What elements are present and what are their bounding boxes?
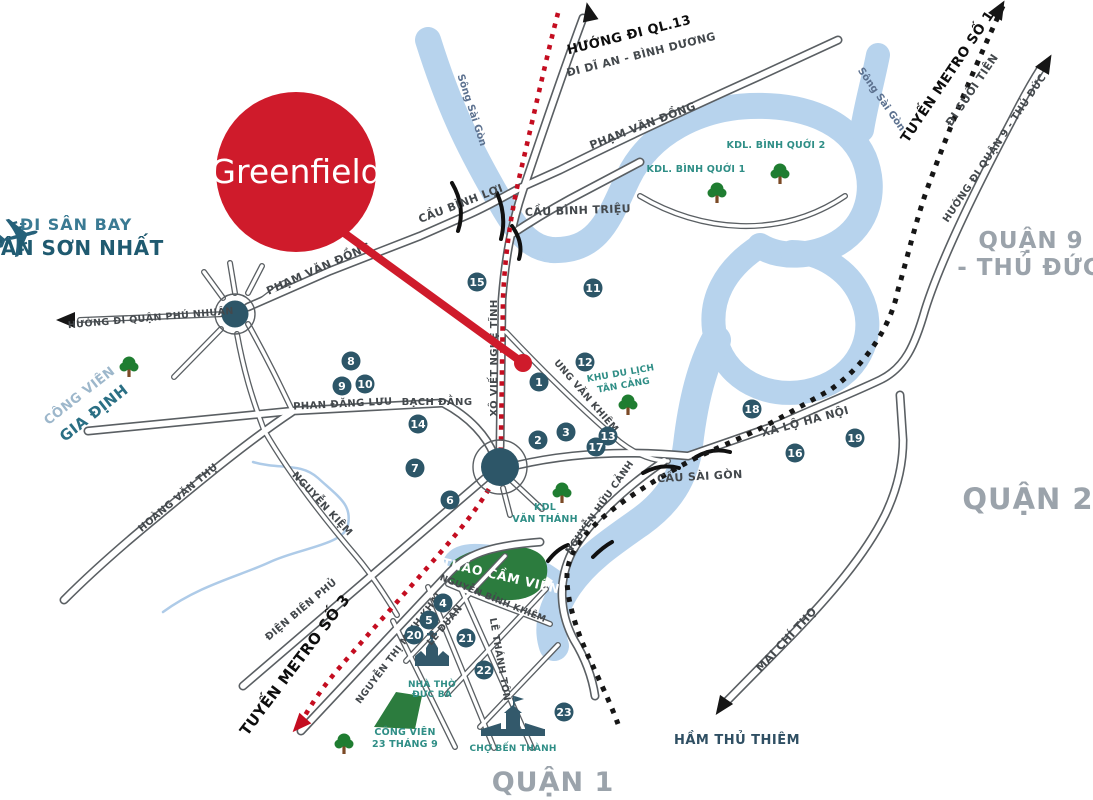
market-tower-roof (504, 705, 522, 713)
church-roof-right (438, 651, 449, 656)
church-body (415, 656, 449, 666)
road-hoang-van-thu: HOÀNG VĂN THỤ (135, 460, 220, 534)
marker-6: 6 (441, 491, 460, 510)
road-bach-dang: BẠCH ĐẰNG (402, 393, 473, 408)
district-quan-9-line2: - THỦ ĐỨC (957, 251, 1093, 281)
marker-1: 1 (530, 373, 549, 392)
road-mai-chi-tho: MAI CHÍ THỌ (753, 605, 819, 675)
marker-5: 5 (420, 611, 439, 630)
airport-direction-line2: TÂN SƠN NHẤT (0, 234, 164, 260)
marker-22: 22 (475, 661, 494, 680)
roundabout-spoke-ne (248, 266, 262, 293)
svg-text:7: 7 (411, 462, 419, 475)
svg-text:10: 10 (357, 378, 373, 391)
market-tower (506, 713, 520, 729)
svg-text:8: 8 (347, 355, 355, 368)
place-kdl-binh-quoi-2: KDL. BÌNH QUỚI 2 (727, 139, 826, 151)
quan9-direction: HƯỚNG ĐI QUẬN 9 - THỦ ĐỨC (939, 71, 1049, 225)
road-hoang-van-thu (64, 412, 292, 600)
marker-3: 3 (557, 423, 576, 442)
svg-text:16: 16 (787, 447, 803, 460)
svg-text:11: 11 (585, 282, 600, 295)
hang-xanh-roundabout (481, 448, 519, 486)
marker-21: 21 (457, 629, 476, 648)
airport-direction-line1: ĐI SÂN BAY (20, 215, 132, 234)
svg-text:5: 5 (425, 614, 433, 627)
market-wing-right (525, 723, 544, 729)
greenfield-location-dot (514, 354, 532, 372)
greenfield-pointer-line (340, 230, 523, 363)
marker-17: 17 (587, 438, 606, 457)
svg-text:14: 14 (410, 418, 426, 431)
tree-van-thanh (553, 483, 572, 504)
marker-10: 10 (356, 375, 375, 394)
location-map: ✈ QUẬN 1QUẬN 2QUẬN 9- THỦ ĐỨCĐI SÂN BAYT… (0, 0, 1093, 800)
marker-19: 19 (846, 429, 865, 448)
svg-text:6: 6 (446, 494, 454, 507)
marker-8: 8 (342, 352, 361, 371)
marker-11: 11 (584, 279, 603, 298)
marker-15: 15 (468, 273, 487, 292)
marker-23: 23 (555, 703, 574, 722)
greenfield-project-name: Greenfield (210, 152, 381, 191)
tree-binh-quoi-1 (708, 183, 727, 204)
tree-binh-quoi-2 (771, 164, 790, 185)
svg-text:15: 15 (469, 276, 484, 289)
svg-text:1: 1 (535, 376, 543, 389)
svg-text:19: 19 (847, 432, 862, 445)
marker-16: 16 (786, 444, 805, 463)
marker-20: 20 (405, 626, 424, 645)
svg-text:22: 22 (476, 664, 491, 677)
roundabout-spoke-sw (174, 329, 221, 377)
marker-9: 9 (333, 377, 352, 396)
svg-text:9: 9 (338, 380, 346, 393)
svg-text:2: 2 (534, 434, 542, 447)
svg-text:21: 21 (458, 632, 473, 645)
svg-text:4: 4 (439, 597, 447, 610)
road-mai-chi-tho (726, 395, 903, 702)
phu-nhuan-direction: HƯỚNG ĐI QUẬN PHÚ NHUẬN (67, 305, 234, 331)
roundabout-spoke-nw (204, 272, 223, 298)
svg-text:12: 12 (577, 356, 592, 369)
svg-text:20: 20 (406, 629, 422, 642)
district-quan-2: QUẬN 2 (962, 482, 1093, 516)
place-nha-tho-duc-ba-line1: NHÀ THỜ (408, 678, 456, 690)
place-kdl-van-thanh-line2: VĂN THÁNH (512, 513, 577, 525)
marker-7: 7 (406, 459, 425, 478)
road-mai-chi-tho (726, 395, 903, 702)
place-kdl-binh-quoi-1: KDL. BÌNH QUỚI 1 (647, 163, 746, 175)
road-xo-viet-nghe-tinh: XÔ VIẾT NGHỆ TĨNH (485, 299, 500, 416)
marker-2: 2 (529, 431, 548, 450)
road-binh-quoi-peninsula (640, 196, 845, 226)
district-quan-1: QUẬN 1 (492, 766, 615, 798)
park-cong-vien-23-line1: CÔNG VIÊN (374, 726, 435, 738)
svg-text:23: 23 (556, 706, 571, 719)
place-nha-tho-duc-ba-line2: ĐỨC BÀ (412, 688, 452, 700)
place-kdl-van-thanh-line1: KDL (534, 502, 556, 513)
svg-text:17: 17 (588, 441, 603, 454)
market-flag-pole (513, 696, 515, 706)
svg-text:3: 3 (562, 426, 570, 439)
park-cong-vien-23-line2: 23 THÁNG 9 (372, 738, 438, 750)
place-cho-ben-thanh-label: CHỢ BẾN THÀNH (469, 741, 556, 754)
tree-cong-vien-23 (335, 734, 354, 755)
marker-14: 14 (409, 415, 428, 434)
marker-18: 18 (743, 400, 762, 419)
market-flag (515, 696, 524, 702)
market-base (481, 729, 545, 736)
svg-text:18: 18 (744, 403, 759, 416)
marker-12: 12 (576, 353, 595, 372)
tree-tan-cang (619, 395, 638, 416)
district-quan-9-line1: QUẬN 9 (978, 226, 1083, 254)
river-meander-ring (713, 246, 867, 393)
thu-thiem-tunnel-label: HẦM THỦ THIÊM (674, 730, 800, 748)
tree-gia-dinh (120, 357, 139, 378)
road-nguyen-kiem: NGUYỄN KIỆM (289, 467, 357, 538)
marker-4: 4 (434, 594, 453, 613)
greenfield-bubble: Greenfield (210, 92, 381, 252)
